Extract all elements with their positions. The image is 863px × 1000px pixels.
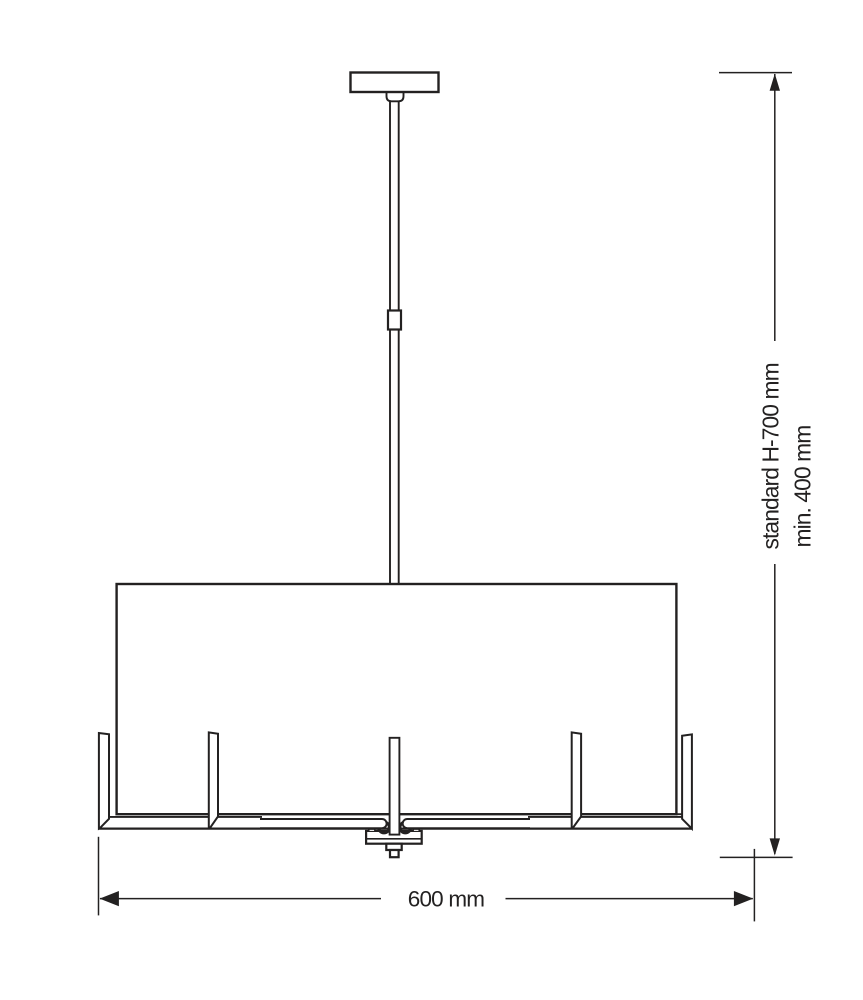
svg-text:min. 400 mm: min. 400 mm — [790, 426, 816, 548]
svg-text:standard H-700 mm: standard H-700 mm — [758, 363, 784, 549]
svg-text:600 mm: 600 mm — [408, 887, 485, 912]
